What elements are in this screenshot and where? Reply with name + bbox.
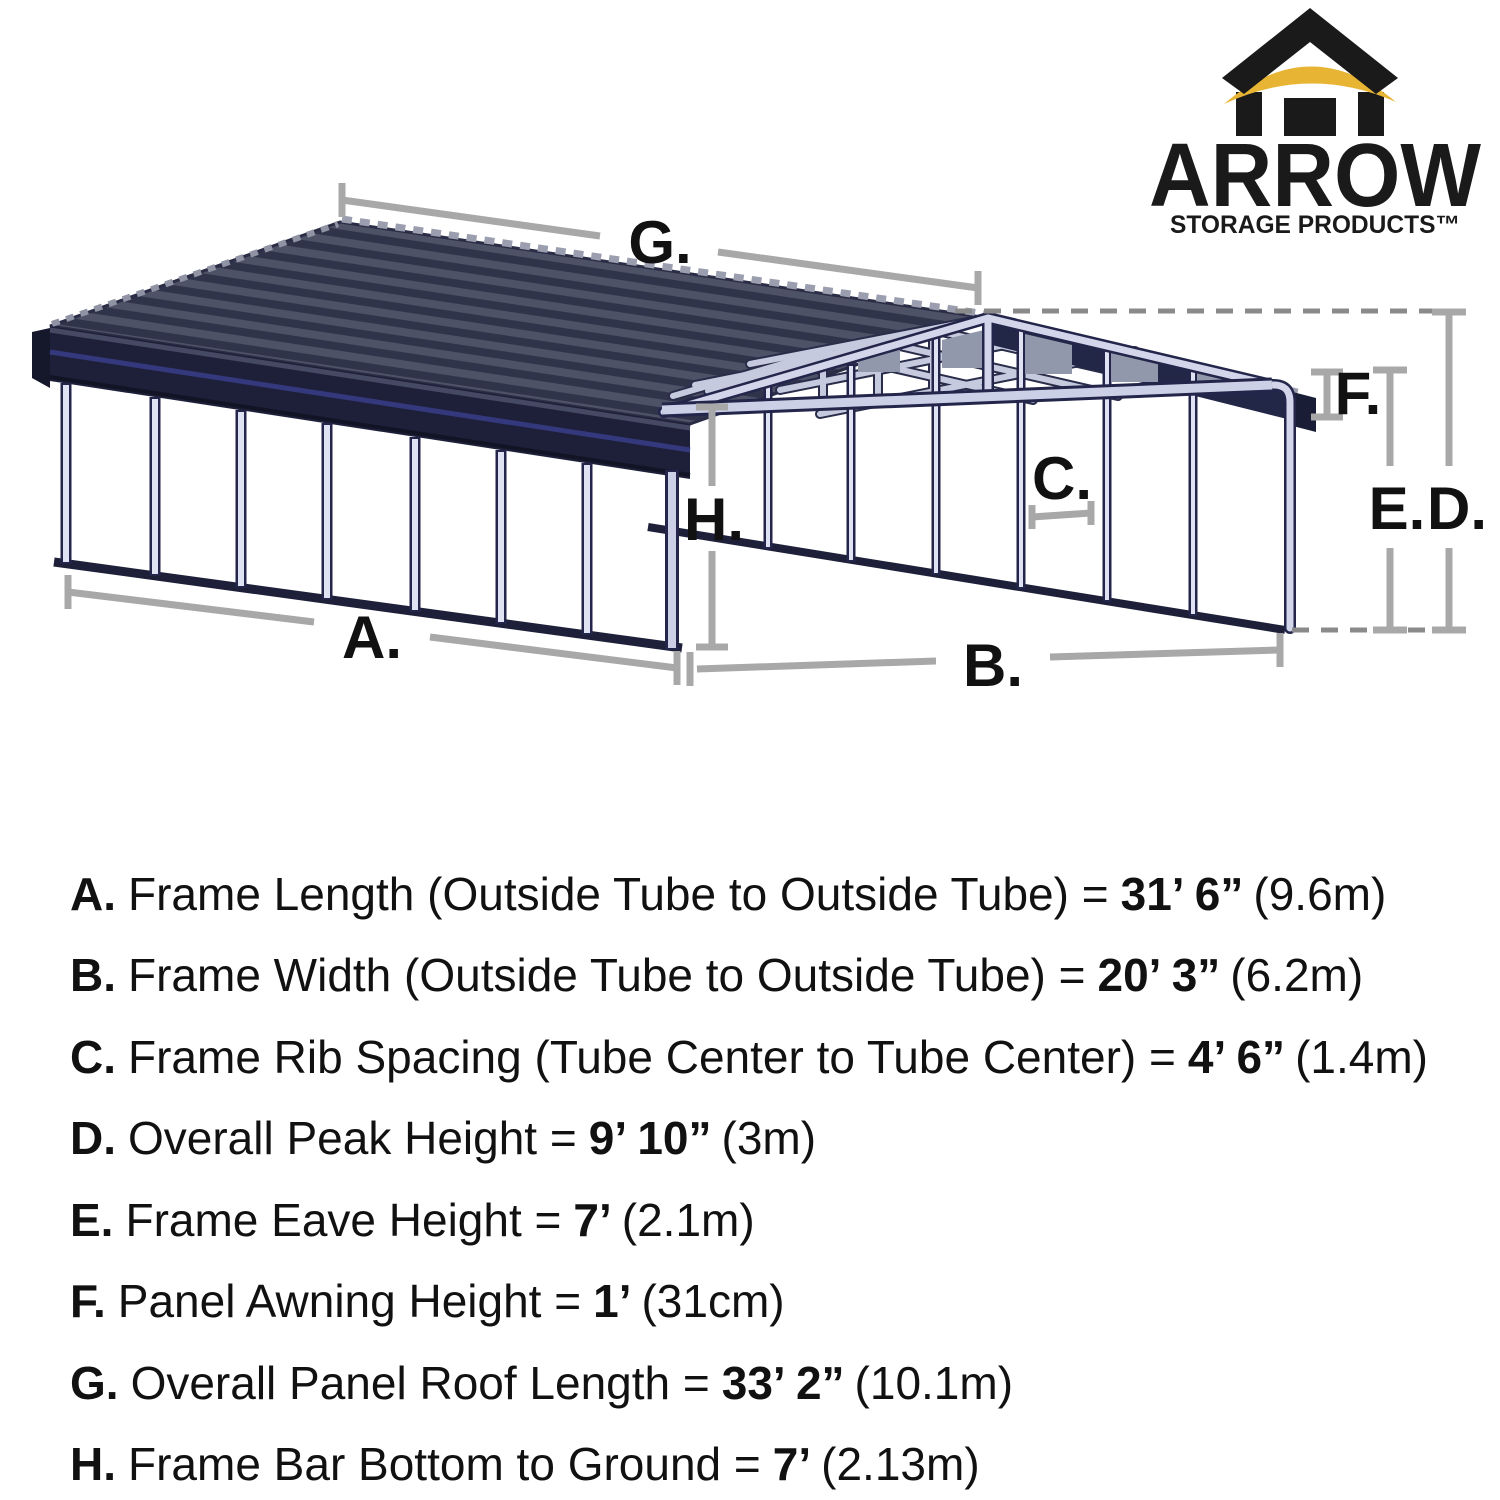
label-C: C. (1032, 445, 1092, 512)
spec-row: D.Overall Peak Height =9’ 10”(3m) (70, 1112, 816, 1164)
label-B: B. (963, 632, 1023, 699)
label-G: G. (628, 209, 691, 276)
dim-D (1432, 312, 1466, 630)
carport-dimension-diagram-page: G. A. B. H. C. F. E. D. ARROW STORAGE PR… (0, 0, 1500, 1500)
spec-list: A.Frame Length (Outside Tube to Outside … (70, 868, 1428, 1490)
spec-row: B.Frame Width (Outside Tube to Outside T… (70, 949, 1363, 1001)
label-A: A. (342, 604, 402, 671)
spec-row: H.Frame Bar Bottom to Ground =7’(2.13m) (70, 1438, 980, 1490)
arrow-logo: ARROW STORAGE PRODUCTS™ (1149, 8, 1481, 239)
label-H: H. (684, 486, 744, 553)
label-D: D. (1427, 475, 1487, 542)
spec-row: F.Panel Awning Height =1’(31cm) (70, 1275, 785, 1327)
label-E: E. (1369, 475, 1426, 542)
spec-row: A.Frame Length (Outside Tube to Outside … (70, 868, 1386, 920)
label-F: F. (1335, 360, 1382, 427)
carport-illustration: G. A. B. H. C. F. E. D. (32, 183, 1487, 699)
brand-tagline: STORAGE PRODUCTS™ (1170, 211, 1460, 239)
awning-left-return (32, 328, 50, 388)
house-icon (1222, 8, 1398, 136)
diagram-canvas: G. A. B. H. C. F. E. D. ARROW STORAGE PR… (0, 0, 1500, 1500)
spec-row: E.Frame Eave Height =7’(2.1m) (70, 1194, 755, 1246)
spec-row: G.Overall Panel Roof Length =33’ 2”(10.1… (70, 1357, 1013, 1409)
spec-row: C.Frame Rib Spacing (Tube Center to Tube… (70, 1031, 1428, 1083)
